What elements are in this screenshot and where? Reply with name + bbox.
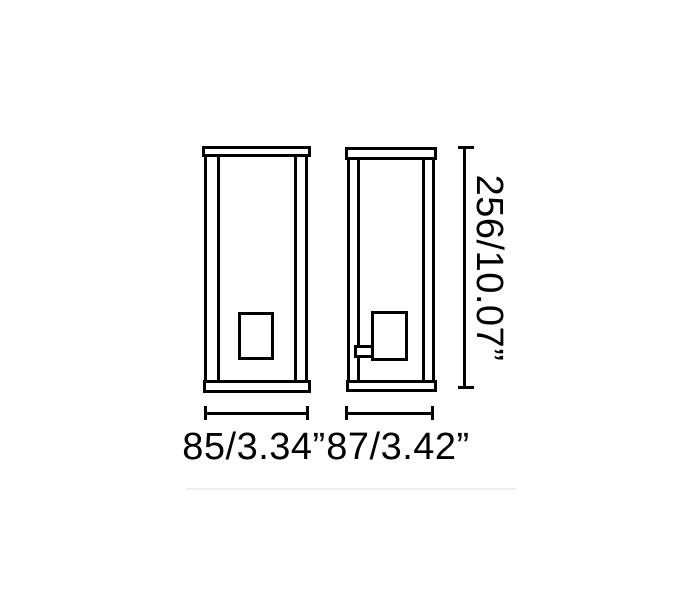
front-width-dim-line xyxy=(205,412,309,415)
side-top-cap xyxy=(345,147,437,160)
side-frame-right-inner xyxy=(422,160,425,381)
side-depth-dim-line xyxy=(346,412,434,415)
height-dim-tick-top xyxy=(458,146,474,149)
height-dim-line xyxy=(463,147,466,389)
front-frame-right-outer xyxy=(305,157,308,381)
faint-divider-line xyxy=(186,488,516,490)
front-width-dim-tick-right xyxy=(306,406,309,420)
dimension-drawing: 85/3.34” 87/3.42” 256/10.07” xyxy=(0,0,700,614)
side-depth-dim-label: 87/3.42” xyxy=(326,428,469,466)
height-dim-label: 256/10.07” xyxy=(470,175,508,362)
front-width-dim-label: 85/3.34” xyxy=(182,428,325,466)
side-socket-box xyxy=(371,311,408,361)
height-dim-tick-bottom xyxy=(458,386,474,389)
front-top-cap xyxy=(202,146,311,157)
side-socket-knob xyxy=(354,345,374,358)
side-bottom-cap xyxy=(346,380,437,392)
front-frame-left-outer xyxy=(204,157,207,381)
front-width-dim-tick-left xyxy=(204,406,207,420)
side-depth-dim-tick-left xyxy=(345,406,348,420)
side-depth-dim-tick-right xyxy=(431,406,434,420)
side-frame-right-outer xyxy=(432,160,435,381)
front-frame-left-inner xyxy=(217,157,220,381)
front-frame-right-inner xyxy=(294,157,297,381)
front-socket-box xyxy=(238,312,274,360)
side-frame-left-outer xyxy=(347,160,350,381)
front-bottom-cap xyxy=(203,380,311,393)
